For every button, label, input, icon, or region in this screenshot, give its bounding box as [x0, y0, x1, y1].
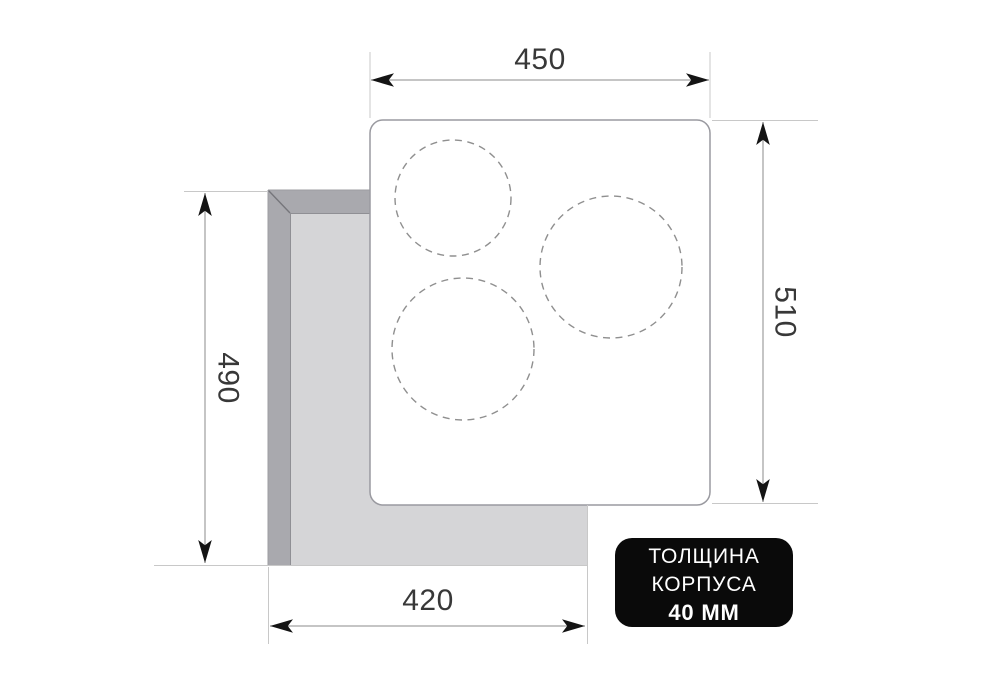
- hob-dimension-diagram: 450 510 490 420 ТОЛЩИНА КОРПУСА 40 ММ: [0, 0, 1000, 700]
- cutout-frame-left: [268, 190, 290, 565]
- cooktop-panel: [370, 120, 710, 505]
- dimension-label-bottom: 420: [402, 584, 454, 617]
- dimension-top-width: 450: [370, 43, 710, 118]
- dimension-label-left: 490: [212, 352, 245, 404]
- cooktop-panel-outline: [370, 120, 710, 505]
- dimension-right-height: 510: [712, 121, 818, 504]
- dimension-label-right: 510: [769, 286, 802, 338]
- diagram-canvas: 450 510 490 420 ТОЛЩИНА КОРПУСА 40 ММ: [0, 0, 1000, 700]
- thickness-badge: ТОЛЩИНА КОРПУСА 40 ММ: [615, 538, 793, 627]
- badge-line-1: ТОЛЩИНА: [648, 545, 759, 568]
- badge-line-3: 40 ММ: [668, 600, 739, 625]
- badge-line-2: КОРПУСА: [651, 573, 756, 596]
- dimension-label-top: 450: [514, 43, 566, 76]
